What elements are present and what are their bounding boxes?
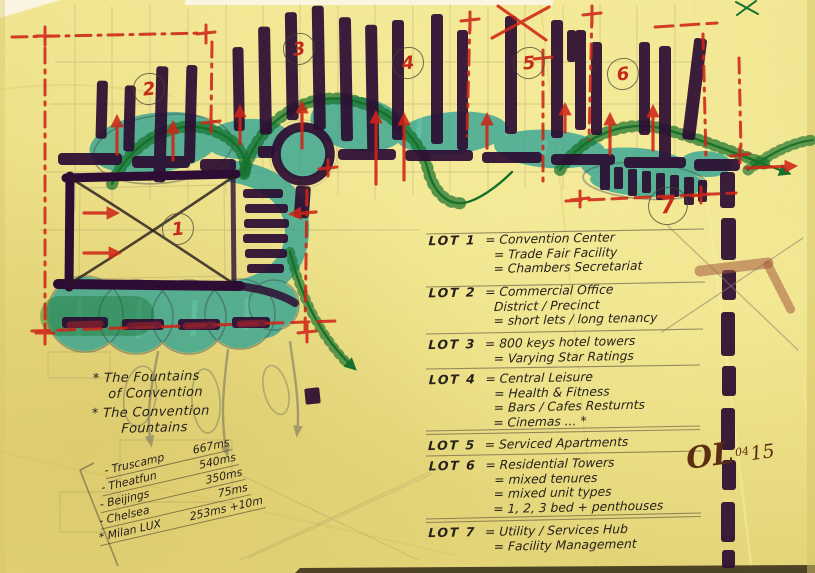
- signature-initials: OL: [684, 436, 736, 477]
- lot1-label: LOT 1: [428, 233, 476, 249]
- legend-entry-lot1: LOT 1 = Convention Center = Trade Fair F…: [427, 230, 643, 278]
- signature-year: 15: [749, 440, 776, 465]
- small-mark: [304, 387, 321, 404]
- lot2-label: LOT 2: [428, 285, 476, 301]
- lot3-label: LOT 3: [428, 337, 476, 353]
- lot4-label: LOT 4: [428, 372, 476, 388]
- right-dashed-column: [720, 172, 736, 568]
- lot7-label: LOT 7: [428, 525, 476, 541]
- legend-entry-lot7: LOT 7 = Utility / Services Hub = Facilit…: [428, 522, 638, 556]
- legend-entry-lot3: LOT 3 = 800 keys hotel towers = Varying …: [428, 334, 636, 368]
- legend-entry-lot4: LOT 4 = Central Leisure = Health & Fitne…: [427, 369, 646, 432]
- lot5-label: LOT 5: [428, 438, 476, 454]
- legend-entry-lot6: LOT 6 = Residential Towers = mixed tenur…: [427, 455, 665, 518]
- signature-month: 04: [734, 444, 750, 459]
- masterplan-sketch: 1 2 3 4 5 6 7 LOT 1 = Convention Center …: [0, 0, 815, 573]
- fountains-note: * The Fountains of Convention * The Conv…: [91, 368, 211, 437]
- legend-entry-lot2: LOT 2 = Commercial Office District / Pre…: [427, 282, 658, 331]
- lot6-label: LOT 6: [428, 458, 476, 474]
